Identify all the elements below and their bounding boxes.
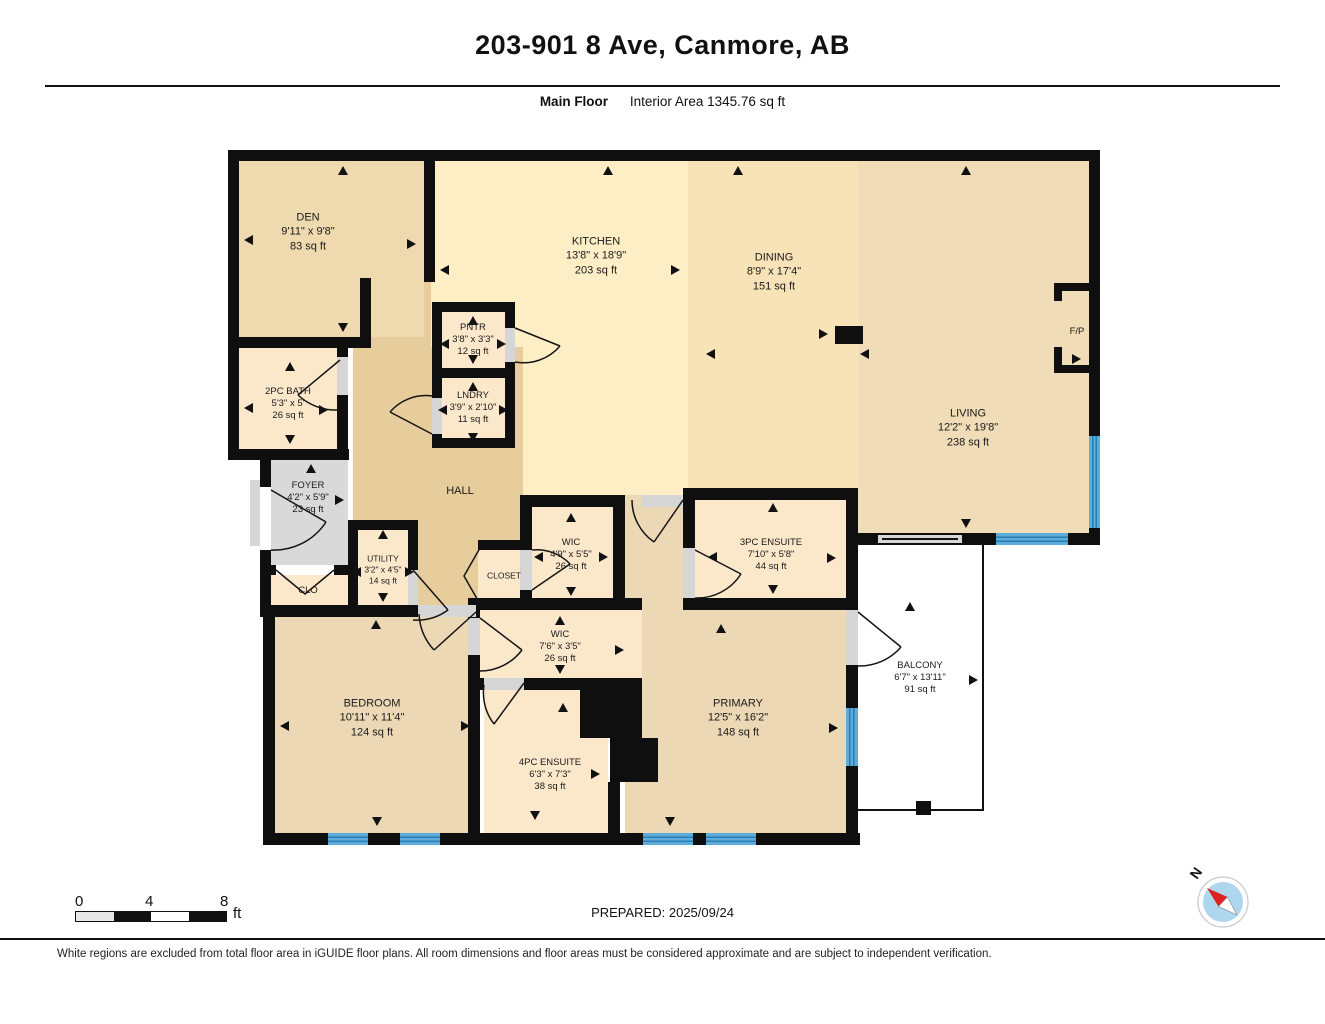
footer-divider (0, 938, 1325, 940)
floorplan-svg (228, 150, 1100, 850)
room-label-4pc-ensuite: 4PC ENSUITE6'3" x 7'3"38 sq ft (519, 757, 581, 793)
room-label-wic-1: WIC4'9" x 5'5"26 sq ft (550, 537, 592, 573)
room-label-hall: HALL (446, 484, 474, 498)
room-label-pantry: PNTR3'8" x 3'3"12 sq ft (452, 322, 494, 358)
room-label-utility: UTILITY3'2" x 4'5"14 sq ft (364, 553, 401, 586)
room-label-living: LIVING12'2" x 19'8"238 sq ft (938, 407, 998, 450)
room-label-primary: PRIMARY12'5" x 16'2"148 sq ft (708, 697, 768, 740)
room-label-den: DEN9'11" x 9'8"83 sq ft (281, 211, 334, 254)
room-label-laundry: LNDRY3'9" x 2'10"11 sq ft (450, 390, 497, 426)
room-label-fireplace: F/P (1070, 326, 1085, 338)
room-label-bedroom: BEDROOM10'11" x 11'4"124 sq ft (340, 697, 405, 740)
room-label-closet: CLOSET (487, 570, 521, 581)
room-label-dining: DINING8'9" x 17'4"151 sq ft (747, 251, 801, 294)
floor-subtitle: Main Floor Interior Area 1345.76 sq ft (0, 94, 1325, 109)
compass-north-label: N (1186, 864, 1205, 881)
room-label-wic-2: WIC7'6" x 3'5"26 sq ft (539, 629, 581, 665)
floorplan-page: { "header": { "title": "203-901 8 Ave, C… (0, 0, 1325, 1024)
floor-label: Main Floor (540, 94, 608, 109)
room-label-kitchen: KITCHEN13'8" x 18'9"203 sq ft (566, 235, 626, 278)
room-label-balcony: BALCONY6'7" x 13'11"91 sq ft (894, 660, 945, 696)
header-divider (45, 85, 1280, 87)
room-label-clo: CLO (298, 585, 318, 597)
room-label-2pc-bath: 2PC BATH5'3" x 5'26 sq ft (265, 386, 311, 422)
disclaimer-text: White regions are excluded from total fl… (57, 948, 1297, 960)
page-title: 203-901 8 Ave, Canmore, AB (0, 30, 1325, 61)
prepared-date: PREPARED: 2025/09/24 (0, 905, 1325, 920)
room-label-foyer: FOYER4'2" x 5'9"23 sq ft (287, 480, 329, 516)
room-label-3pc-ensuite: 3PC ENSUITE7'10" x 5'8"44 sq ft (740, 537, 802, 573)
compass-icon: N (1185, 862, 1261, 938)
floorplan-canvas: DEN9'11" x 9'8"83 sq ft KITCHEN13'8" x 1… (228, 150, 1100, 850)
interior-area-label: Interior Area 1345.76 sq ft (630, 94, 785, 109)
